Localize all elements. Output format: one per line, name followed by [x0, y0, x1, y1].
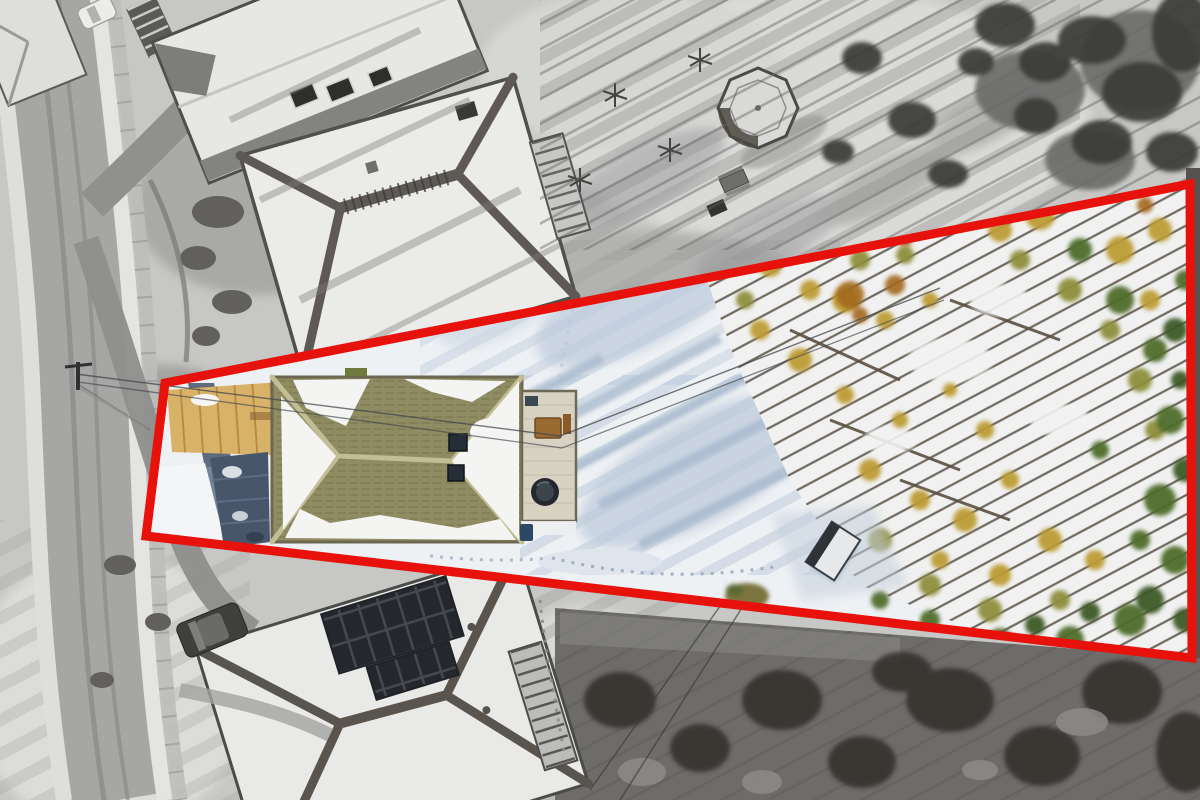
- subject-house-roof: [272, 368, 522, 542]
- aerial-property-photo: [0, 0, 1200, 800]
- rear-deck: [520, 391, 576, 541]
- photo-canvas: [0, 0, 1200, 800]
- blue-bin: [520, 524, 533, 541]
- bench: [563, 414, 571, 434]
- chimney: [448, 465, 464, 481]
- deck-box: [525, 396, 538, 406]
- garden-item: [345, 368, 367, 376]
- chimney: [449, 434, 467, 451]
